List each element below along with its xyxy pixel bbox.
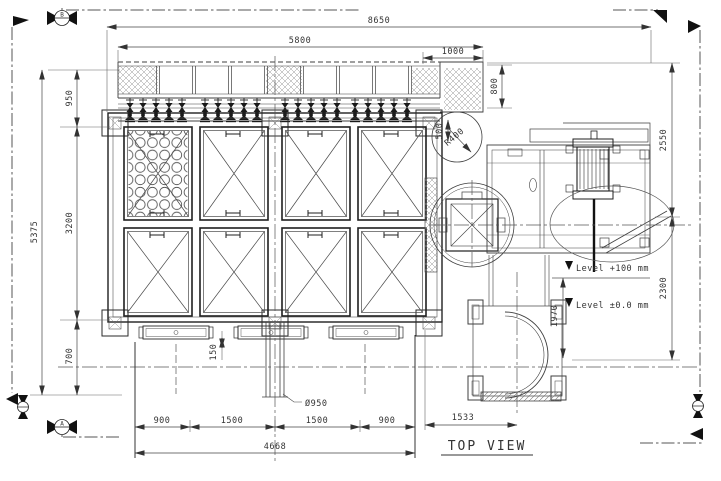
- level-high-label: Level +100 mm: [576, 264, 649, 274]
- dim-right-upper: 2550: [659, 129, 669, 151]
- level-high-flag-icon: [565, 261, 573, 270]
- datum-marker-right-icon: [693, 394, 704, 418]
- dim-level-drop: 1970: [550, 305, 560, 327]
- dim-fan-radius: R400: [443, 126, 467, 148]
- duct-ext-hatch: [444, 68, 481, 110]
- dim-left-bottom: 700: [65, 348, 75, 365]
- view-title-label: TOP VIEW: [448, 439, 527, 454]
- outlet-flange-hatched: [481, 392, 561, 401]
- blueprint-page: B A: [0, 0, 721, 481]
- dim-overall-width: 8650: [368, 16, 390, 26]
- dim-left-top: 950: [65, 90, 75, 107]
- level-annotations: Level +100 mm Level ±0.0 mm: [552, 261, 650, 311]
- support-beams: [139, 326, 403, 339]
- fan-skid-frame: [487, 145, 650, 253]
- dim-duct-dia: Ø950: [305, 398, 327, 409]
- dim-fan-offset: 1533: [452, 413, 474, 423]
- duct-hatch-mid: [266, 66, 302, 94]
- drawing-canvas: B A: [0, 0, 721, 481]
- dia-leader-line: [283, 394, 302, 402]
- dim-base-overall: 4668: [264, 442, 286, 452]
- motor: [566, 131, 620, 272]
- view-title: TOP VIEW: [441, 439, 533, 455]
- dim-opening: 500: [435, 123, 445, 140]
- section-marker-a-label: A: [60, 421, 64, 428]
- dim-base-seg4: 900: [379, 416, 396, 426]
- dim-right-lower: 2300: [659, 277, 669, 299]
- dim-base-seg3: 1500: [306, 416, 328, 426]
- dim-duct-ext: 1000: [442, 47, 464, 57]
- dim-base-seg2: 1500: [221, 416, 243, 426]
- air-duct: [118, 62, 483, 121]
- dim-base-seg1: 900: [154, 416, 171, 426]
- section-marker-b-label: B: [60, 12, 64, 19]
- dim-overall-height: 5375: [30, 221, 40, 243]
- dim-beam-gap: 150: [209, 344, 219, 361]
- dim-duct-width: 5800: [289, 36, 311, 46]
- belt-guard-ellipse: [550, 186, 674, 262]
- panel-holes: [129, 131, 188, 216]
- fan-assembly: [425, 112, 671, 306]
- duct-bend-outer: [505, 312, 548, 398]
- duct-hatch-left: [118, 66, 158, 94]
- dim-left-mid: 3200: [65, 212, 75, 234]
- level-zero-label: Level ±0.0 mm: [576, 301, 649, 311]
- border-frame: [12, 10, 703, 443]
- datum-marker-left-icon: [18, 395, 29, 419]
- dim-duct-depth: 800: [490, 78, 500, 95]
- motor-fins: [580, 149, 608, 189]
- duct-hatch-right: [412, 68, 438, 94]
